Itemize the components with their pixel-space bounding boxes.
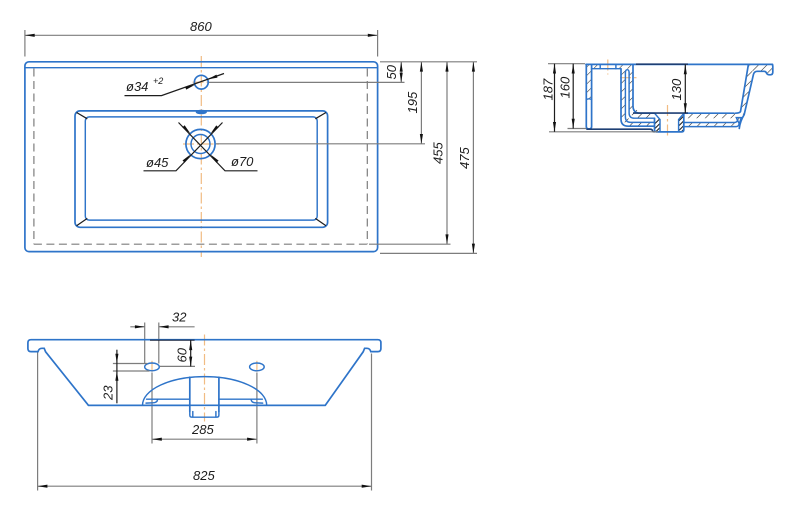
svg-text:475: 475 <box>457 147 472 169</box>
svg-text:187: 187 <box>541 78 556 100</box>
svg-text:285: 285 <box>191 422 214 437</box>
svg-text:ø45: ø45 <box>146 155 169 170</box>
svg-text:32: 32 <box>172 310 187 325</box>
svg-text:60: 60 <box>175 347 190 362</box>
svg-text:ø34: ø34 <box>126 79 148 94</box>
svg-text:50: 50 <box>384 64 399 79</box>
svg-text:130: 130 <box>669 78 684 100</box>
svg-text:160: 160 <box>558 76 573 98</box>
svg-text:23: 23 <box>101 385 116 401</box>
svg-text:+2: +2 <box>153 76 163 86</box>
svg-text:825: 825 <box>193 468 215 483</box>
svg-text:860: 860 <box>190 19 212 34</box>
svg-text:195: 195 <box>405 91 420 113</box>
svg-text:455: 455 <box>431 142 446 164</box>
svg-text:ø70: ø70 <box>231 154 254 169</box>
